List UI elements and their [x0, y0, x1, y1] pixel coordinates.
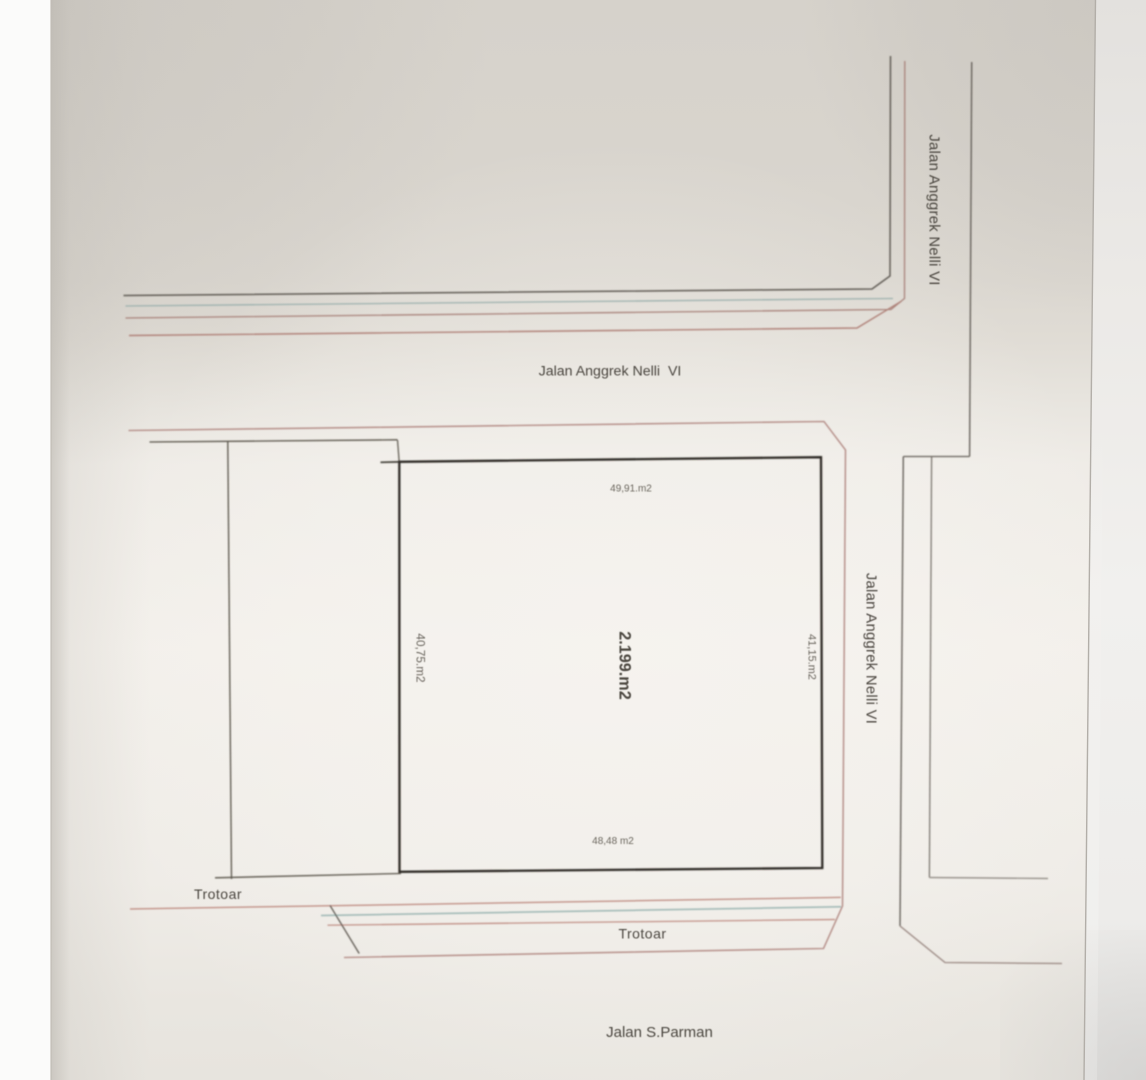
svg-text:49,91.m2: 49,91.m2 — [610, 484, 652, 495]
svg-text:Jalan Anggrek Nelli VI: Jalan Anggrek Nelli VI — [926, 134, 942, 285]
svg-text:Jalan Anggrek Nelli VI: Jalan Anggrek Nelli VI — [863, 573, 879, 724]
svg-text:40,75.m2: 40,75.m2 — [413, 633, 427, 682]
svg-text:2.199.m2: 2.199.m2 — [616, 631, 634, 699]
svg-text:Jalan S.Parman: Jalan S.Parman — [606, 1024, 713, 1041]
svg-text:41,15.m2: 41,15.m2 — [805, 634, 817, 680]
svg-text:Trotoar: Trotoar — [194, 886, 242, 902]
svg-text:48,48 m2: 48,48 m2 — [592, 836, 634, 847]
svg-text:Trotoar: Trotoar — [618, 926, 666, 942]
svg-text:Jalan Anggrek Nelli VI: Jalan Anggrek Nelli VI — [539, 364, 682, 380]
